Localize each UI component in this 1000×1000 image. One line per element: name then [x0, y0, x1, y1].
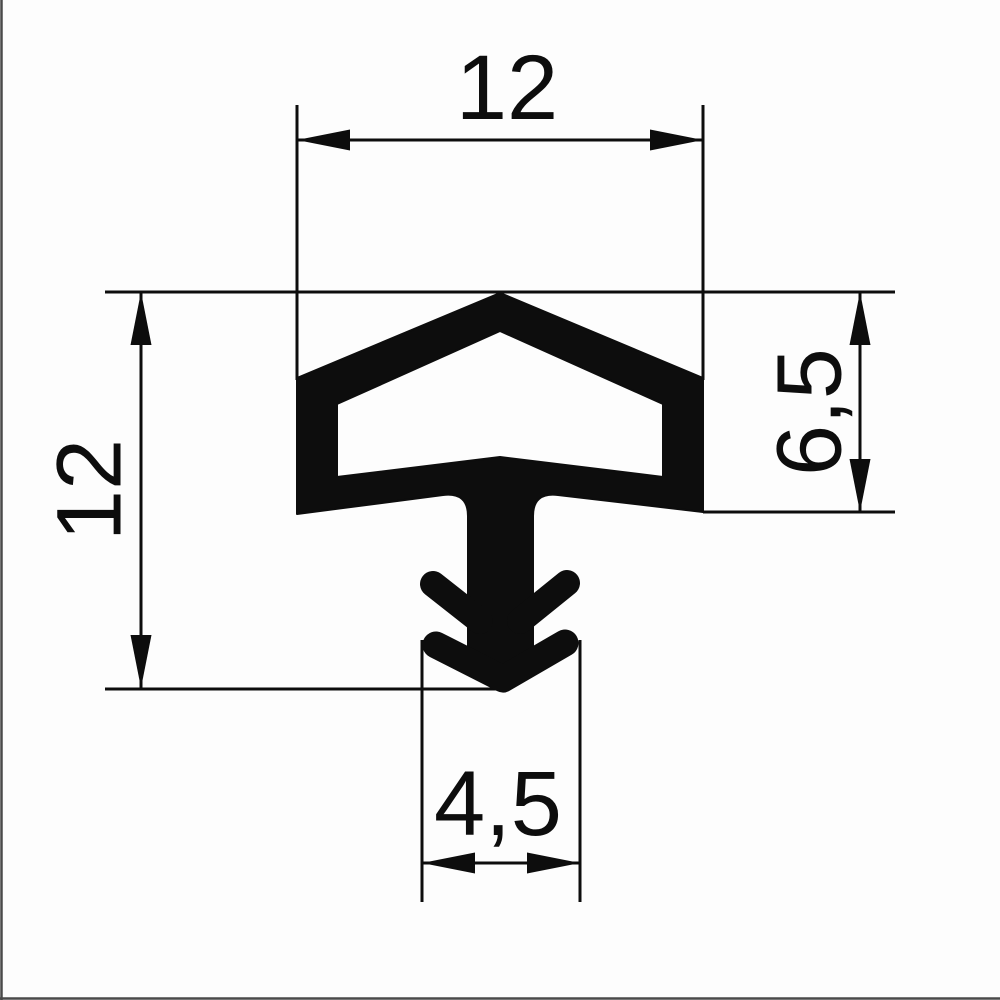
- dimension-label-left-height: 12: [38, 439, 140, 541]
- arrowhead-right: [527, 853, 580, 874]
- dimension-left-height: 12: [38, 292, 151, 688]
- arrowhead-up: [131, 292, 152, 345]
- dimension-right-height: 6,5: [758, 292, 870, 512]
- dimension-bottom-width: 4,5: [422, 753, 580, 874]
- dimension-label-right-height: 6,5: [758, 348, 860, 476]
- arrowhead-left: [422, 853, 475, 874]
- dimension-top-width: 12: [297, 37, 703, 151]
- profile-body: [297, 293, 703, 670]
- drawing-canvas: 12 12 6,5 4,5: [0, 0, 1000, 1000]
- arrowhead-up: [850, 292, 871, 345]
- seal-profile-shape: [297, 293, 703, 679]
- arrowhead-down: [131, 635, 152, 688]
- dimension-label-top-width: 12: [456, 37, 558, 139]
- dimension-label-bottom-width: 4,5: [434, 753, 562, 855]
- arrowhead-right: [650, 130, 703, 151]
- arrowhead-left: [297, 130, 350, 151]
- seal-profile-technical-drawing: 12 12 6,5 4,5: [0, 0, 1000, 1000]
